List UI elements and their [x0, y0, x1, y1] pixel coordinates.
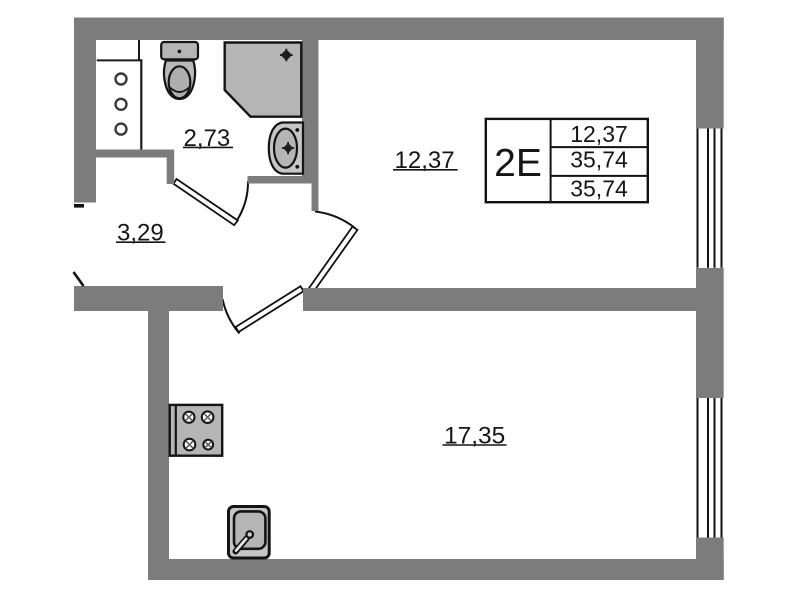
svg-text:35,74: 35,74 [570, 147, 628, 173]
svg-text:2E: 2E [494, 142, 542, 185]
svg-text:35,74: 35,74 [570, 176, 628, 202]
svg-text:12,37: 12,37 [570, 121, 628, 147]
